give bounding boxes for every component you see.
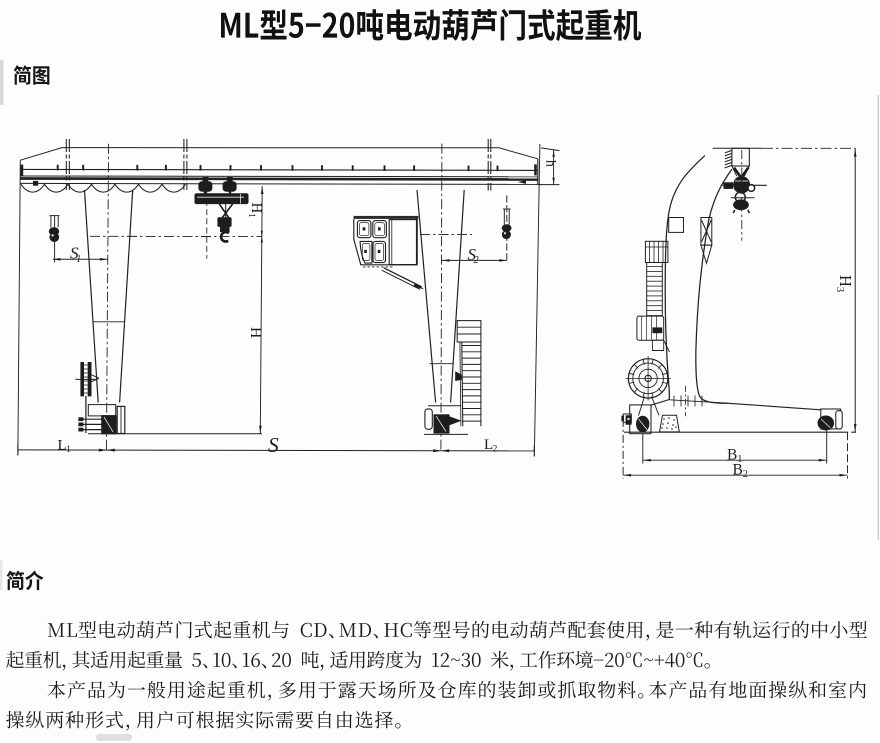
- svg-text:H3: H3: [834, 275, 855, 292]
- svg-text:S1: S1: [70, 244, 81, 265]
- svg-text:L1: L1: [58, 438, 72, 456]
- svg-text:H1: H1: [246, 203, 264, 218]
- svg-text:S: S: [268, 433, 279, 457]
- svg-text:L2: L2: [484, 437, 498, 455]
- svg-text:B2: B2: [733, 462, 748, 481]
- svg-text:H: H: [247, 327, 264, 338]
- svg-text:S2: S2: [468, 245, 480, 266]
- svg-text:h: h: [542, 160, 557, 167]
